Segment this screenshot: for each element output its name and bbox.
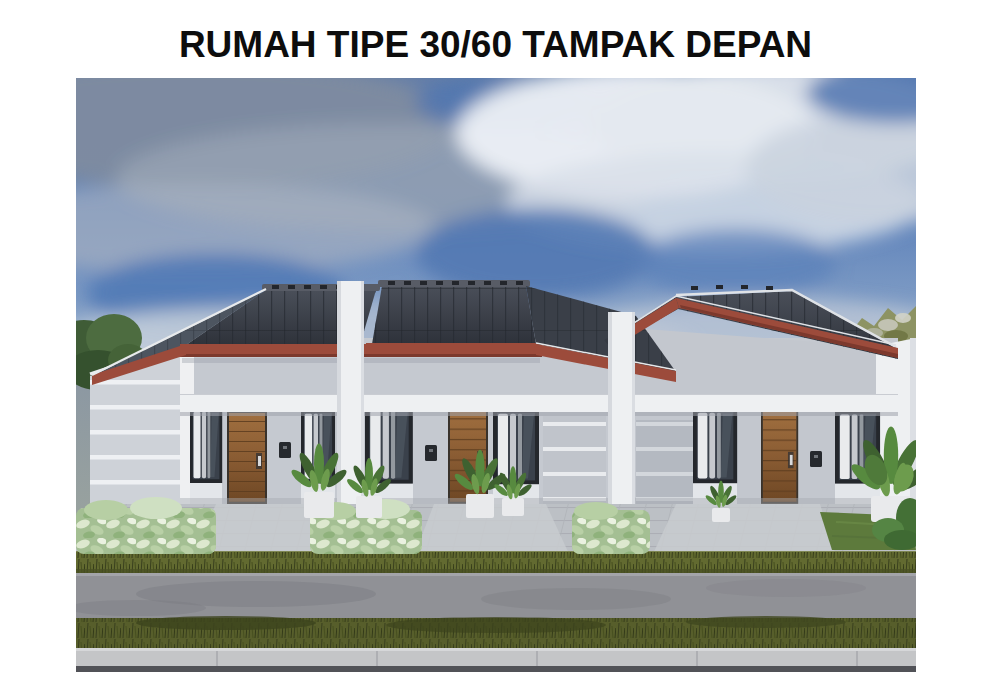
house-1-doorbell <box>279 442 291 458</box>
house-2-fascia <box>366 343 542 357</box>
house-2-window-right <box>493 409 539 484</box>
house-2-doorbell <box>425 445 437 461</box>
house-render-svg <box>76 78 916 672</box>
house-3-window-left <box>693 408 737 483</box>
flyer-page: RUMAH TIPE 30/60 TAMPAK DEPAN <box>0 0 991 700</box>
grass-verge-far <box>76 616 916 650</box>
house-1-window-left <box>190 407 222 483</box>
wall-striped-panel-mid-left <box>543 416 606 504</box>
house-render-image <box>76 78 916 672</box>
house-3-doorbell <box>810 451 822 467</box>
asphalt-road <box>76 573 916 620</box>
house-1-door <box>227 411 267 504</box>
walkway-house-3 <box>652 504 836 556</box>
wall-striped-panel-mid-right <box>636 420 693 504</box>
concrete-curb <box>76 648 916 666</box>
page-title: RUMAH TIPE 30/60 TAMPAK DEPAN <box>0 24 991 66</box>
house-3-door <box>761 409 798 504</box>
road-edge-strip <box>76 666 916 672</box>
grass-verge-near <box>76 551 916 573</box>
